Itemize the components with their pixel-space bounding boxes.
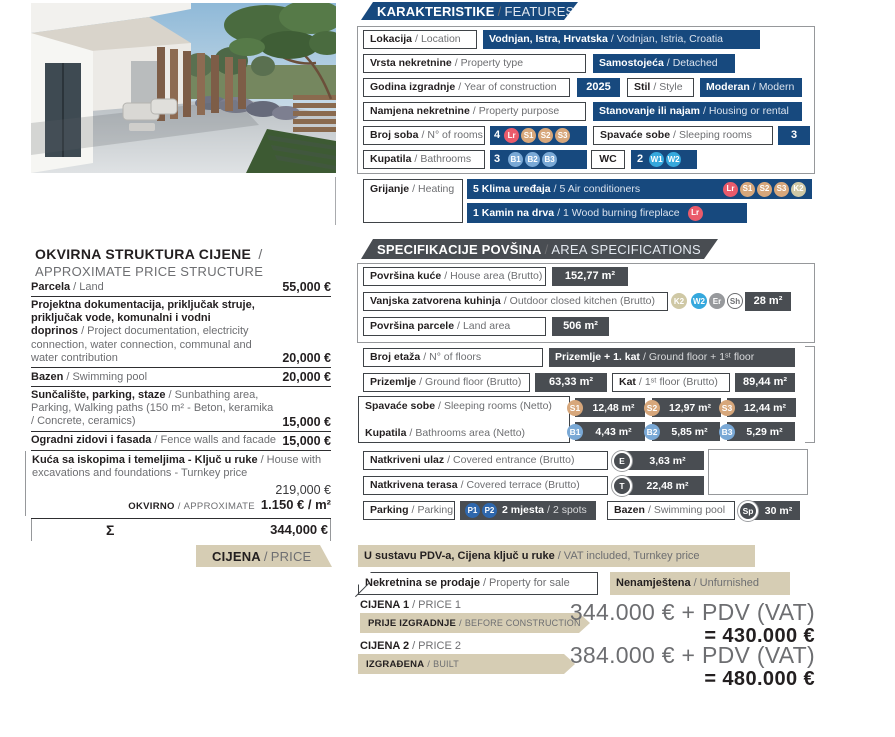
first-floor-label-en: 1ˢᵗ floor (Brutto) (645, 377, 718, 388)
style-value: Moderan/Modern (700, 78, 802, 97)
wc-label: WC (591, 150, 625, 169)
ground-floor-value-text: 63,33 m² (549, 377, 593, 388)
location-label-en: Location (421, 34, 461, 45)
fireplace-bar: 1 Kamin na drva/1 Wood burning fireplace… (467, 203, 747, 223)
approx-label-hr: OKVIRNO (128, 501, 174, 512)
separator: / (154, 434, 157, 446)
terrace-label-hr: Natkrivena terasa (370, 480, 458, 491)
separator: / (554, 184, 557, 195)
sleeping-netto-label: Spavaće sobe/Sleeping rooms (Netto) (365, 401, 552, 412)
land-area-label-hr: Površina parcele (370, 321, 454, 332)
separator: / (66, 371, 69, 383)
bathroom-2-area: B2 5,85 m² (644, 421, 720, 442)
parking-label-hr: Parking (370, 505, 409, 516)
rooms-label-hr: Broj soba (370, 130, 418, 141)
location-label-hr: Lokacija (370, 34, 412, 45)
for-sale-box: Nekretnina se prodaje/Property for sale (358, 572, 598, 595)
separator: / (558, 551, 561, 562)
turnkey-text: Kuća sa iskopima i temeljima - Ključ u r… (32, 453, 331, 483)
location-value: Vodnjan, Istra, Hrvatska/Vodnjan, Istria… (483, 30, 760, 49)
first-floor-label-hr: Kat (619, 377, 636, 388)
price-item-text: Parcela/Land (31, 281, 282, 294)
property-photo (31, 3, 336, 173)
land-area-label: Površina parcele/Land area (363, 317, 546, 336)
separator: / (667, 58, 670, 69)
price-item-value: 20,000 € (282, 351, 331, 365)
ac-s1-badge: S1 (740, 182, 755, 197)
first-floor-value: 89,44 m² (735, 373, 795, 392)
separator: / (415, 34, 418, 45)
house-rendering-art (31, 3, 336, 173)
style-value-en: Modern (759, 82, 795, 93)
separator: / (504, 296, 507, 307)
turnkey-value: 219,000 € (32, 483, 331, 497)
separator: / (653, 82, 656, 93)
for-sale-en: Property for sale (489, 578, 570, 589)
price-item-text: Sunčalište, parking, staze/Sunbathing ar… (31, 389, 282, 429)
sleeping-rooms-label-en: Sleeping rooms (679, 130, 752, 141)
ac-s3-badge: S3 (774, 182, 789, 197)
year-label-hr: Godina izgradnje (370, 82, 455, 93)
pool-area: Sp 30 m² (738, 500, 800, 521)
ground-floor-label: Prizemlje/Ground floor (Brutto) (363, 373, 530, 392)
ac-text-hr: 5 Klima uređaja (473, 184, 551, 195)
floors-label-hr: Broj etaža (370, 352, 420, 363)
sleeping-rooms-count: 3 (778, 126, 810, 145)
wc-2-badge: W2 (666, 152, 681, 167)
separator: / (264, 549, 268, 564)
sleeping-netto-label-en: Sleeping rooms (Netto) (444, 400, 552, 412)
price-structure-list: Parcela/Land 55,000 € Projektna dokument… (31, 278, 331, 541)
sum-symbol: Σ (106, 522, 114, 538)
separator: / (461, 480, 464, 491)
terrace-label-en: Covered terrace (Brutto) (466, 480, 579, 491)
for-sale-notch-line (355, 583, 369, 597)
price2-name: CIJENA 2/PRICE 2 (360, 640, 461, 652)
parking-label-en: Parking (417, 505, 453, 516)
furnishing-bar: Nenamještena/Unfurnished (610, 572, 790, 595)
sum-value: 344,000 € (270, 522, 328, 537)
price-title-en: PRICE (271, 549, 312, 564)
rooms-count-badges: 4 Lr S1 S2 S3 (490, 126, 587, 145)
separator: / (611, 34, 614, 45)
parking-2-badge: P2 (482, 503, 497, 518)
price-item-value: 15,000 € (282, 434, 331, 448)
style-label-hr: Stil (634, 82, 650, 93)
bathrooms-netto-label: Kupatila/Bathrooms area (Netto) (365, 428, 525, 439)
price-item-sunbathing: Sunčalište, parking, staze/Sunbathing ar… (31, 387, 331, 432)
b3-area-value: 5,29 m² (727, 422, 795, 441)
floors-value-hr: Prizemlje + 1. kat (555, 352, 640, 363)
price1-stage-hr: PRIJE IZGRADNJE (368, 618, 456, 629)
price-item-text: Projektna dokumentacija, priključak stru… (31, 299, 282, 365)
land-area-label-en: Land area (463, 321, 510, 332)
kitchen-er-badge: Er (709, 293, 725, 309)
property-type-value-en: Detached (673, 58, 718, 69)
bathrooms-netto-label-hr: Kupatila (365, 427, 406, 439)
wc-count-badges: 2 W1 W2 (631, 150, 697, 169)
separator: / (643, 352, 646, 363)
entrance-label: Natkriveni ulaz/Covered entrance (Brutto… (363, 451, 608, 470)
parking-value: P1 P2 2 mjesta/2 spots (460, 501, 596, 520)
price-item-en: Swimming pool (72, 371, 147, 383)
fireplace-text-en: 1 Wood burning fireplace (563, 208, 680, 219)
price-item-hr: Ogradni zidovi i fasada (31, 434, 151, 446)
price-item-value: 15,000 € (282, 415, 331, 429)
first-floor-value-text: 89,44 m² (743, 377, 787, 388)
heating-label-en: Heating (418, 184, 454, 195)
sleeping-room-3-area: S3 12,44 m² (719, 397, 796, 418)
price-item-hr: Bazen (31, 371, 63, 383)
ac-kitchen-badge: K2 (791, 182, 806, 197)
ac-living-room-badge: Lr (723, 182, 738, 197)
netto-rooms-label-box: Spavaće sobe/Sleeping rooms (Netto) Kupa… (358, 396, 570, 443)
outdoor-kitchen-label-en: Outdoor closed kitchen (Brutto) (510, 296, 655, 307)
location-label: Lokacija/Location (363, 30, 477, 49)
approx-label-en: APPROXIMATE (184, 501, 255, 512)
separator: / (457, 321, 460, 332)
turnkey-approx: OKVIRNO/APPROXIMATE1.150 € / m² (32, 497, 331, 512)
bathrooms-label-hr: Kupatila (370, 154, 411, 165)
separator: / (639, 377, 642, 388)
price2-total: = 480.000 € (500, 668, 815, 690)
furnishing-hr: Nenamještena (616, 578, 691, 589)
entrance-label-hr: Natkriveni ulaz (370, 455, 444, 466)
price2-amount: 384.000 € + PDV (VAT) (500, 643, 815, 668)
wc-count: 2 (637, 154, 643, 165)
bathroom-1-area: B1 4,43 m² (567, 421, 645, 442)
year-value-text: 2025 (586, 82, 610, 93)
separator: / (419, 377, 422, 388)
kitchen-wc-badge: W2 (691, 293, 707, 309)
approx-rate: 1.150 € / m² (261, 497, 331, 512)
purpose-label-en: Property purpose (479, 106, 560, 117)
parking-value-hr: 2 mjesta (502, 505, 544, 516)
separator: / (421, 130, 424, 141)
price1-amount: 344.000 € + PDV (VAT) (500, 600, 815, 625)
property-spec-sheet: KARAKTERISTIKE / FEATURES Lokacija/Locat… (0, 0, 895, 737)
price-item-text: Bazen/Swimming pool (31, 371, 282, 384)
bathrooms-label: Kupatila/Bathrooms (363, 150, 485, 169)
ground-floor-value: 63,33 m² (535, 373, 607, 392)
pool-badge: Sp (738, 501, 758, 521)
fireplace-text-hr: 1 Kamin na drva (473, 208, 554, 219)
kitchen-shower-badge: Sh (727, 293, 743, 309)
sleeping-netto-label-hr: Spavaće sobe (365, 400, 435, 412)
ac-text-en: 5 Air conditioners (560, 184, 641, 195)
price1-name: CIJENA 1/PRICE 1 (360, 599, 461, 611)
style-label: Stil/Style (627, 78, 694, 97)
pool-label: Bazen/Swimming pool (607, 501, 735, 520)
separator: / (438, 400, 441, 412)
floors-label: Broj etaža/N° of floors (363, 348, 543, 367)
separator: / (444, 271, 447, 282)
separator: / (412, 184, 415, 195)
price-item-turnkey: Kuća sa iskopima i temeljima - Ključ u r… (25, 451, 331, 516)
price-header: CIJENA / PRICE (196, 545, 332, 567)
property-type-value: Samostojeća/Detached (593, 54, 735, 73)
price-item-documentation: Projektna dokumentacija, priključak stru… (31, 297, 331, 368)
sleeping-rooms-count-text: 3 (791, 130, 797, 141)
photo-side-divider (335, 177, 336, 225)
parking-1-badge: P1 (465, 503, 480, 518)
sleeping-room-2-area: S2 12,97 m² (644, 397, 721, 418)
furnishing-en: Unfurnished (700, 578, 759, 589)
price2-name-en: PRICE 2 (418, 640, 461, 652)
separator: / (73, 281, 76, 293)
floors-value: Prizemlje + 1. kat/Ground floor + 1ˢᵗ fl… (549, 348, 795, 367)
separator: / (547, 505, 550, 516)
entrance-badge: E (612, 451, 632, 471)
sleeping-rooms-label-hr: Spavaće sobe (600, 130, 670, 141)
price-title-hr: CIJENA (212, 549, 261, 564)
separator: / (423, 352, 426, 363)
separator: / (648, 505, 651, 516)
living-room-badge: Lr (504, 128, 519, 143)
separator: / (458, 82, 461, 93)
style-value-hr: Moderan (706, 82, 750, 93)
price2-stage-hr: IZGRAĐENA (366, 659, 424, 670)
property-type-label-hr: Vrsta nekretnine (370, 58, 452, 69)
heating-label: Grijanje/Heating (363, 179, 463, 223)
separator: / (459, 618, 462, 629)
house-area-value: 152,77 m² (552, 267, 628, 286)
price-item-fence: Ogradni zidovi i fasada/Fence walls and … (31, 432, 331, 451)
sleeping-rooms-label: Spavaće sobe/Sleeping rooms (593, 126, 773, 145)
parking-label: Parking/Parking (363, 501, 455, 520)
s1-badge: S1 (567, 400, 583, 416)
house-area-label: Površina kuće/House area (Brutto) (363, 267, 546, 286)
house-area-value-text: 152,77 m² (565, 271, 615, 282)
year-label: Godina izgradnje/Year of construction (363, 78, 570, 97)
purpose-value: Stanovanje ili najam/Housing or rental (593, 102, 802, 121)
separator: / (261, 454, 264, 466)
separator: / (703, 106, 706, 117)
purpose-label: Namjena nekretnine/Property purpose (363, 102, 586, 121)
outdoor-kitchen-label: Vanjska zatvorena kuhinja/Outdoor closed… (363, 292, 668, 311)
floors-group-bracket (805, 346, 815, 443)
separator: / (427, 659, 430, 670)
price-structure-total: Σ 344,000 € (31, 519, 331, 541)
features-title-hr: KARAKTERISTIKE (377, 4, 495, 19)
price-item-hr: Sunčalište, parking, staze (31, 389, 166, 401)
sleeping-room-2-badge: S2 (538, 128, 553, 143)
ground-floor-label-hr: Prizemlje (370, 377, 416, 388)
price-item-pool: Bazen/Swimming pool 20,000 € (31, 368, 331, 387)
bathrooms-count: 3 (494, 154, 500, 165)
rooms-label: Broj soba/N° of rooms (363, 126, 485, 145)
separator: / (412, 599, 415, 611)
purpose-value-en: Housing or rental (709, 106, 789, 117)
b3-badge: B3 (719, 424, 735, 440)
land-area-value: 506 m² (552, 317, 609, 336)
separator: / (409, 427, 412, 439)
location-value-hr: Vodnjan, Istra, Hrvatska (489, 34, 608, 45)
terrace-badge: T (612, 476, 632, 496)
wc-label-text: WC (599, 154, 617, 165)
price-structure-title: OKVIRNA STRUKTURA CIJENE / APPROXIMATE P… (35, 246, 335, 279)
style-label-en: Style (659, 82, 682, 93)
for-sale-hr: Nekretnina se prodaje (365, 578, 480, 589)
bathroom-2-badge: B2 (525, 152, 540, 167)
separator: / (455, 58, 458, 69)
s2-badge: S2 (644, 400, 660, 416)
price-item-hr: Parcela (31, 281, 70, 293)
outdoor-kitchen-value: 28 m² (745, 292, 791, 311)
separator: / (169, 389, 172, 401)
s3-badge: S3 (719, 400, 735, 416)
separator: / (694, 578, 697, 589)
b1-badge: B1 (567, 424, 583, 440)
price2-amounts: 384.000 € + PDV (VAT) = 480.000 € (500, 643, 815, 690)
price-structure-title-en: APPROXIMATE PRICE STRUCTURE (35, 264, 335, 279)
sleeping-room-1-area: S1 12,48 m² (567, 397, 645, 418)
separator: / (414, 154, 417, 165)
b2-area-value: 5,85 m² (652, 422, 720, 441)
sleeping-room-1-badge: S1 (521, 128, 536, 143)
price-item-en: Land (79, 281, 103, 293)
vat-note-en: VAT included, Turnkey price (564, 551, 700, 562)
ac-s2-badge: S2 (757, 182, 772, 197)
separator: / (473, 106, 476, 117)
s2-area-value: 12,97 m² (652, 398, 721, 417)
house-area-label-en: House area (Brutto) (450, 271, 542, 282)
turnkey-hr: Kuća sa iskopima i temeljima - Ključ u r… (32, 454, 258, 466)
location-value-en: Vodnjan, Istria, Croatia (617, 34, 723, 45)
heating-label-hr: Grijanje (370, 184, 409, 195)
outdoor-kitchen-label-hr: Vanjska zatvorena kuhinja (370, 296, 501, 307)
air-conditioners-bar: 5 Klima uređaja/5 Air conditioners Lr S1… (467, 179, 812, 199)
bathroom-3-badge: B3 (542, 152, 557, 167)
for-sale-notch (358, 572, 371, 585)
terrace-area-value: 22,48 m² (624, 476, 704, 495)
features-header: KARAKTERISTIKE / FEATURES (361, 2, 578, 20)
areas-header: SPECIFIKACIJE POVŠINA / AREA SPECIFICATI… (361, 239, 718, 259)
ground-floor-label-en: Ground floor (Brutto) (425, 377, 521, 388)
house-area-label-hr: Površina kuće (370, 271, 441, 282)
bathrooms-count-badges: 3 B1 B2 B3 (490, 150, 587, 169)
separator: / (178, 501, 181, 512)
property-type-label: Vrsta nekretnine/Property type (363, 54, 586, 73)
wc-1-badge: W1 (649, 152, 664, 167)
features-title-en: FEATURES (504, 4, 574, 19)
separator: / (447, 455, 450, 466)
vat-note-bar: U sustavu PDV-a, Cijena ključ u ruke/VAT… (358, 545, 755, 567)
floors-value-en: Ground floor + 1ˢᵗ floor (649, 352, 754, 363)
pool-label-hr: Bazen (614, 505, 645, 516)
separator: / (545, 242, 549, 257)
separator: / (81, 325, 84, 337)
bathrooms-netto-label-en: Bathrooms area (Netto) (415, 427, 525, 439)
bathrooms-label-en: Bathrooms (420, 154, 471, 165)
entrance-label-en: Covered entrance (Brutto) (453, 455, 574, 466)
separator: / (258, 246, 262, 262)
rooms-label-en: N° of rooms (427, 130, 483, 141)
bathroom-1-badge: B1 (508, 152, 523, 167)
separator: / (557, 208, 560, 219)
areas-title-hr: SPECIFIKACIJE POVŠINA (377, 242, 542, 257)
terrace-area: T 22,48 m² (612, 475, 704, 496)
kitchen-badge: K2 (671, 293, 687, 309)
areas-title-en: AREA SPECIFICATIONS (551, 242, 700, 257)
land-area-value-text: 506 m² (563, 321, 598, 332)
entrance-terrace-empty-box (708, 449, 808, 495)
separator: / (412, 505, 415, 516)
b2-badge: B2 (644, 424, 660, 440)
floors-label-en: N° of floors (429, 352, 481, 363)
ac-badges: Lr S1 S2 S3 K2 (723, 182, 806, 197)
fireplace-living-room-badge: Lr (688, 206, 703, 221)
s1-area-value: 12,48 m² (575, 398, 645, 417)
price2-stage-en: BUILT (433, 659, 459, 669)
entrance-area-value: 3,63 m² (624, 451, 704, 470)
price-item-land: Parcela/Land 55,000 € (31, 278, 331, 297)
purpose-label-hr: Namjena nekretnine (370, 106, 470, 117)
separator: / (483, 578, 486, 589)
entrance-area: E 3,63 m² (612, 450, 704, 471)
separator: / (753, 82, 756, 93)
price1-name-en: PRICE 1 (418, 599, 461, 611)
s3-area-value: 12,44 m² (727, 398, 796, 417)
vat-note-hr: U sustavu PDV-a, Cijena ključ u ruke (364, 551, 555, 562)
price-item-en: Fence walls and facade (160, 434, 276, 446)
bathroom-3-area: B3 5,29 m² (719, 421, 795, 442)
property-type-value-hr: Samostojeća (599, 58, 664, 69)
rooms-count: 4 (494, 130, 500, 141)
parking-value-en: 2 spots (553, 505, 587, 516)
b1-area-value: 4,43 m² (575, 422, 645, 441)
price2-name-hr: CIJENA 2 (360, 640, 409, 652)
price1-name-hr: CIJENA 1 (360, 599, 409, 611)
separator: / (498, 4, 502, 19)
purpose-value-hr: Stanovanje ili najam (599, 106, 700, 117)
price-item-value: 55,000 € (282, 280, 331, 294)
outdoor-kitchen-value-text: 28 m² (754, 296, 783, 307)
property-type-label-en: Property type (461, 58, 523, 69)
separator: / (412, 640, 415, 652)
terrace-label: Natkrivena terasa/Covered terrace (Brutt… (363, 476, 608, 495)
separator: / (673, 130, 676, 141)
price-item-value: 20,000 € (282, 370, 331, 384)
price-structure-title-hr: OKVIRNA STRUKTURA CIJENE (35, 246, 251, 262)
first-floor-label: Kat/1ˢᵗ floor (Brutto) (612, 373, 730, 392)
year-label-en: Year of construction (464, 82, 556, 93)
price1-amounts: 344.000 € + PDV (VAT) = 430.000 € (500, 600, 815, 647)
pool-label-en: Swimming pool (654, 505, 725, 516)
price-item-text: Ogradni zidovi i fasada/Fence walls and … (31, 434, 282, 447)
year-value: 2025 (577, 78, 620, 97)
sleeping-room-3-badge: S3 (555, 128, 570, 143)
